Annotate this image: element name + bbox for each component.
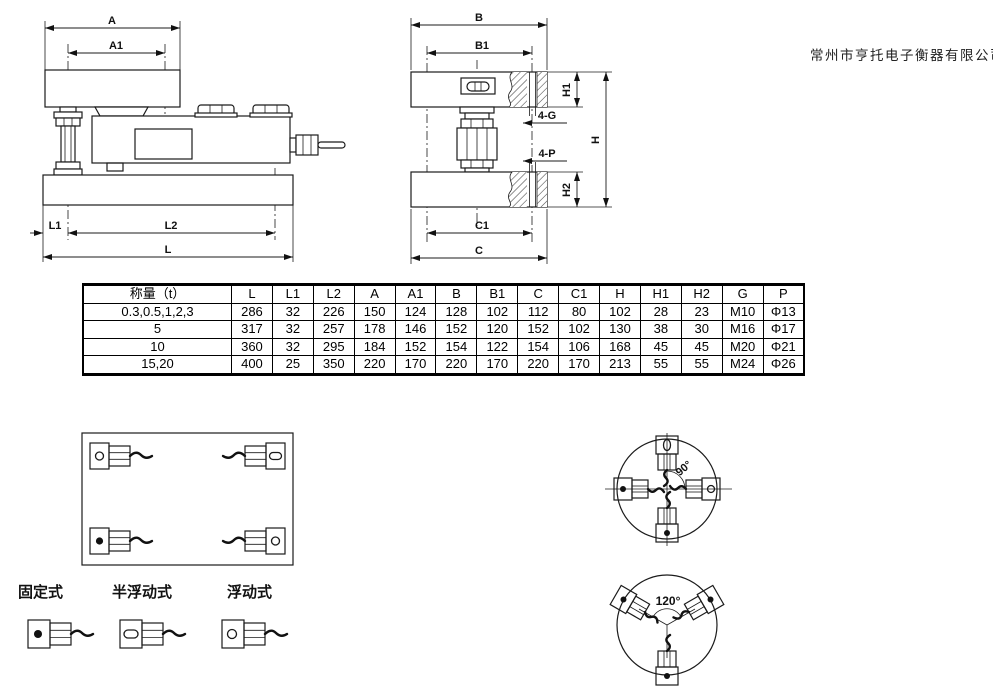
spec-cell: 55 [640,356,681,375]
spec-cell: 120 [477,321,518,339]
spec-cell: 30 [681,321,722,339]
spec-cell: 168 [600,338,641,356]
dim-label-b1: B1 [475,40,489,52]
spec-cell: M10 [722,303,763,321]
dim-label-h: H [590,136,602,144]
spec-cell: 102 [600,303,641,321]
spec-cell: 106 [559,338,600,356]
spec-cell: 220 [436,356,477,375]
legend-label-fixed: 固定式 [18,581,63,602]
legend-symbol-floating [222,620,287,648]
legend-symbol-semi-floating [120,620,185,648]
side-view-drawing: A A1 [25,4,370,266]
spec-cell: 154 [436,338,477,356]
angle-label-120: 120° [656,594,681,608]
spec-header-cell: P [763,285,804,304]
spec-cell: 152 [518,321,559,339]
dim-label-b: B [475,12,483,24]
spec-cell: 152 [436,321,477,339]
spec-cell: 146 [395,321,436,339]
hole-callout-p: 4-P [538,148,555,160]
cell-symbol-semi-floating [223,443,285,469]
cell-symbol [656,635,678,685]
spec-cell: 360 [232,338,273,356]
cable [318,142,345,148]
spec-header-row: 称量（t）LL1L2AA1BB1CC1HH1H2GP [83,285,804,304]
spec-cell: 317 [232,321,273,339]
spec-cell: M24 [722,356,763,375]
spec-cell: 350 [313,356,354,375]
spec-cell: 150 [354,303,395,321]
cell-symbol-fixed [90,528,152,554]
spec-cell: 128 [436,303,477,321]
spec-cell: 5 [83,321,232,339]
spec-cell: 28 [640,303,681,321]
spec-cell: 295 [313,338,354,356]
spec-row: 15,20400253502201702201702201702135555M2… [83,356,804,375]
body-bolt-icon [250,105,292,117]
cell-symbol-floating [223,528,285,554]
spec-cell: 170 [559,356,600,375]
dim-label-a1: A1 [109,40,123,52]
spec-header-cell: A1 [395,285,436,304]
spec-cell: 400 [232,356,273,375]
circle-layout-90: 90° [592,420,744,562]
spec-cell: 184 [354,338,395,356]
spec-cell: 45 [681,338,722,356]
spec-header-cell: G [722,285,763,304]
spec-header-cell: L2 [313,285,354,304]
spec-cell: 178 [354,321,395,339]
spec-header-cell: A [354,285,395,304]
circle-layout-120: 120° [592,561,744,689]
dim-label-c1: C1 [475,220,489,232]
front-view-drawing: B B1 4-G [390,4,625,269]
open-circle-icon [228,630,237,639]
spec-cell: Φ17 [763,321,804,339]
spec-row: 10360322951841521541221541061684545M20Φ2… [83,338,804,356]
legend-symbol-fixed [28,620,93,648]
spec-header-cell: B1 [477,285,518,304]
spec-cell: 10 [83,338,232,356]
slot-oval-icon [124,630,138,638]
spec-cell: 124 [395,303,436,321]
bottom-plate [43,175,293,205]
spec-cell: 226 [313,303,354,321]
dim-label-l2: L2 [165,220,178,232]
spec-header-cell: C [518,285,559,304]
legend-label-floating: 浮动式 [227,581,272,602]
company-name: 常州市亨托电子衡器有限公司 [810,44,993,64]
spec-cell: 152 [395,338,436,356]
spec-cell: 25 [272,356,313,375]
dim-label-h1: H1 [561,83,573,97]
spec-cell: 170 [477,356,518,375]
spec-header-cell: H2 [681,285,722,304]
spec-cell: 80 [559,303,600,321]
spec-cell: 122 [477,338,518,356]
spec-cell: 38 [640,321,681,339]
legend-symbols [15,612,305,662]
spec-cell: 220 [354,356,395,375]
spec-row: 5317322571781461521201521021303830M16Φ17 [83,321,804,339]
cable-gland-icon [290,135,345,155]
spec-cell: 154 [518,338,559,356]
spec-header-cell: L [232,285,273,304]
spec-cell: 45 [640,338,681,356]
angle-label-90: 90° [674,459,694,479]
load-cell-end-view [457,107,497,172]
spec-cell: 220 [518,356,559,375]
spec-cell: 55 [681,356,722,375]
top-plate [45,70,180,107]
spec-table: 称量（t）LL1L2AA1BB1CC1HH1H2GP0.3,0.5,1,2,32… [82,283,805,376]
spec-cell: 32 [272,303,313,321]
spec-cell: 112 [518,303,559,321]
spec-cell: 102 [477,303,518,321]
body-bolt-icon [195,105,237,117]
spec-cell: 32 [272,321,313,339]
spec-cell: 23 [681,303,722,321]
spec-table-wrap: 称量（t）LL1L2AA1BB1CC1HH1H2GP0.3,0.5,1,2,32… [82,283,805,376]
spec-cell: 257 [313,321,354,339]
spec-cell: Φ21 [763,338,804,356]
spec-cell: 32 [272,338,313,356]
load-cell-body [92,116,290,171]
dim-label-a: A [108,15,116,27]
dim-label-c: C [475,245,483,257]
spec-cell: 286 [232,303,273,321]
spec-header-cell: L1 [272,285,313,304]
mounting-bolt [54,107,82,175]
spec-cell: Φ26 [763,356,804,375]
spec-header-cell: C1 [559,285,600,304]
spec-cell: Φ13 [763,303,804,321]
spec-header-cell: H1 [640,285,681,304]
spec-row: 0.3,0.5,1,2,3286322261501241281021128010… [83,303,804,321]
dim-label-l: L [165,244,172,256]
legend-label-semi-floating: 半浮动式 [112,581,172,602]
filled-dot-icon [34,630,42,638]
spec-cell: 170 [395,356,436,375]
hole-callout-g: 4-G [538,110,556,122]
datasheet-page: A A1 [0,0,993,689]
spec-cell: 102 [559,321,600,339]
spec-cell: M20 [722,338,763,356]
cell-symbol-floating [90,443,152,469]
spec-cell: 15,20 [83,356,232,375]
spec-cell: 0.3,0.5,1,2,3 [83,303,232,321]
dim-label-l1: L1 [49,220,62,232]
dim-label-h2: H2 [561,183,573,197]
spec-cell: 130 [600,321,641,339]
spec-cell: M16 [722,321,763,339]
spec-header-cell: B [436,285,477,304]
spec-header-cell: H [600,285,641,304]
four-cell-layout-diagram [78,428,318,573]
spec-cell: 213 [600,356,641,375]
spec-header-cell: 称量（t） [83,285,232,304]
load-cell-boss [95,107,148,116]
